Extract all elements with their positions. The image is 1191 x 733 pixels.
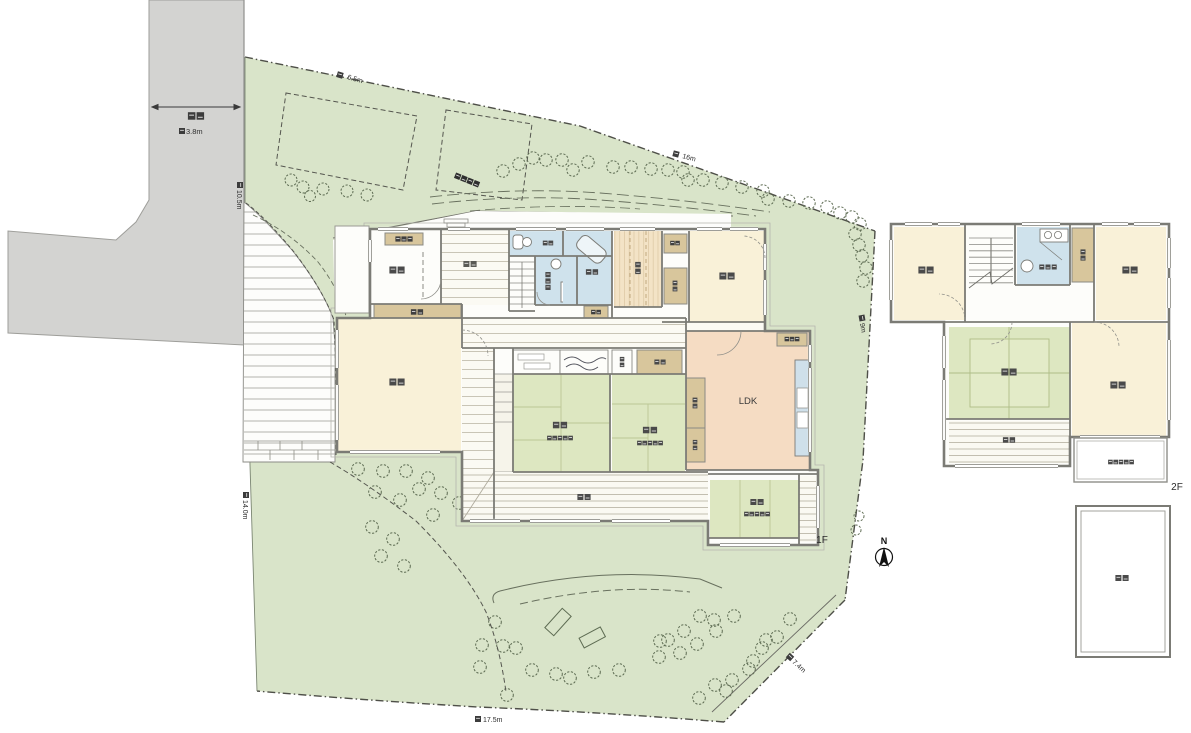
svg-text:2F: 2F xyxy=(1171,482,1183,493)
svg-text:N: N xyxy=(881,536,888,546)
svg-text:LDK: LDK xyxy=(739,396,758,407)
svg-text:10.5m: 10.5m xyxy=(235,190,242,210)
svg-text:14.0m: 14.0m xyxy=(241,500,248,520)
svg-text:3.8m: 3.8m xyxy=(186,127,203,136)
svg-text:17.5m: 17.5m xyxy=(483,717,503,724)
svg-text:1F: 1F xyxy=(816,535,828,546)
